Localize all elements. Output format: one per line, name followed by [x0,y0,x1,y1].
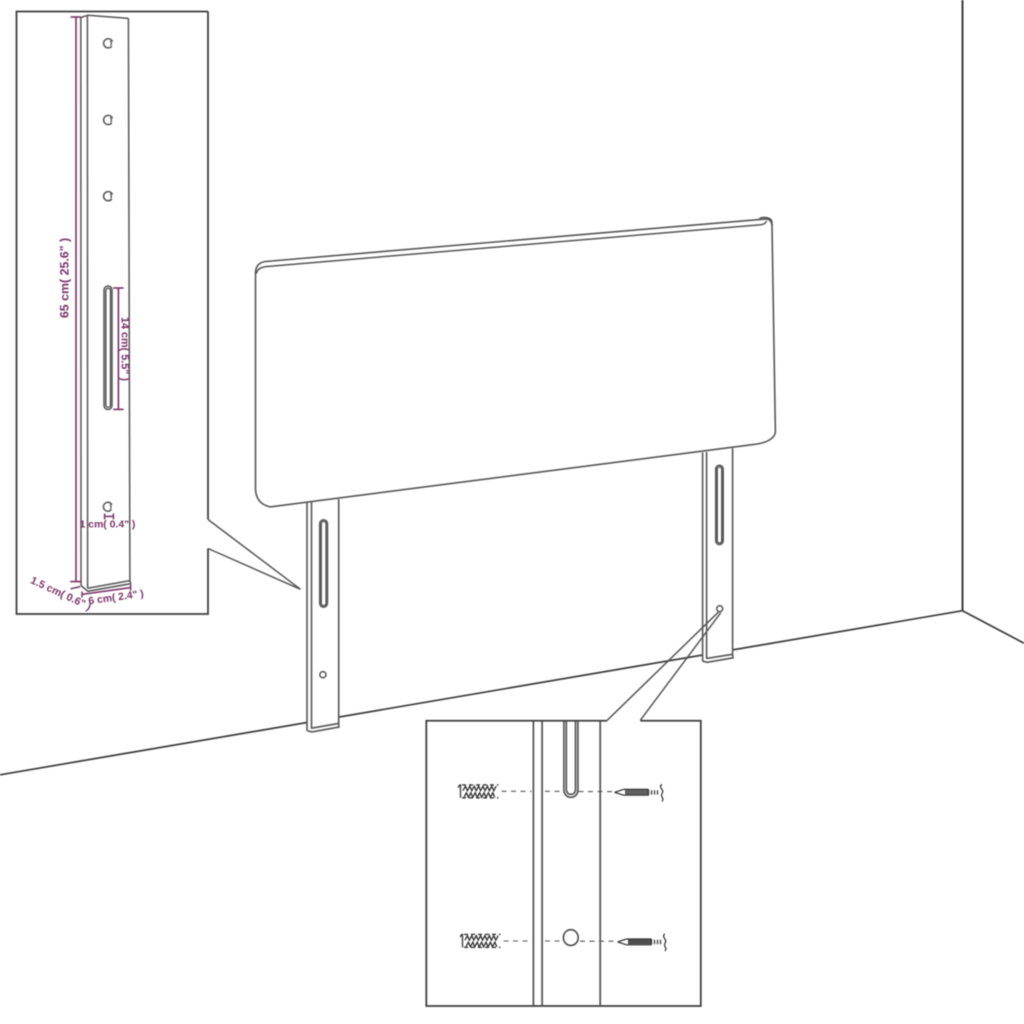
svg-text:14 cm( 5.5" ): 14 cm( 5.5" ) [118,317,130,381]
svg-text:1 cm( 0.4" ): 1 cm( 0.4" ) [80,520,136,531]
svg-text:65 cm( 25.6" ): 65 cm( 25.6" ) [58,238,72,318]
